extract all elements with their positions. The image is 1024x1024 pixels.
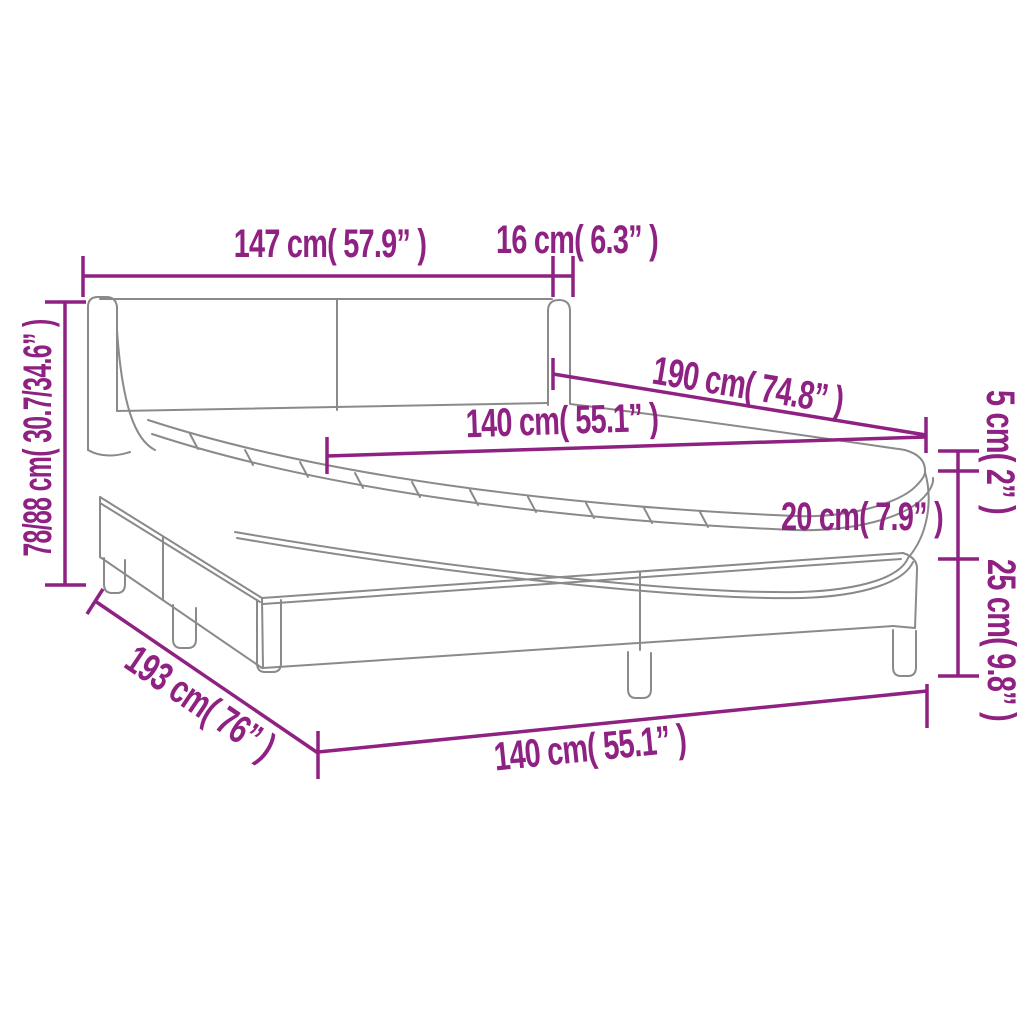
headboard-left-post-bottom	[88, 450, 130, 456]
bed-leg-1	[104, 558, 125, 593]
mattress-bottom-edge-2	[237, 538, 913, 598]
dimension-diagram: 147 cm( 57.9” ) 16 cm( 6.3” ) 78/88 cm( …	[0, 0, 1024, 1024]
dim-label-topper-height: 5 cm( 2” )	[980, 390, 1020, 514]
bed-leg-2	[173, 605, 196, 648]
dim-label-headboard-width: 147 cm( 57.9” )	[234, 224, 427, 264]
dim-label-total-height: 78/88 cm( 30.7/34.6” )	[18, 319, 58, 556]
dim-label-base-height: 25 cm( 9.8” )	[981, 559, 1021, 721]
base-corner-edge	[262, 598, 263, 668]
bed-leg-4	[628, 652, 651, 698]
base-front-face-bottom	[263, 626, 893, 668]
headboard-left-post-inner	[117, 330, 155, 450]
bed-leg-5	[893, 630, 916, 676]
dim-label-mattress-width: 140 cm( 55.1” )	[465, 398, 659, 445]
dim-tick	[87, 589, 103, 614]
dim-label-headboard-depth: 16 cm( 6.3” )	[496, 220, 658, 260]
base-bottom-right-edge	[893, 626, 915, 628]
dim-label-mattress-height: 20 cm( 7.9” )	[781, 497, 943, 537]
mattress-corner-arc	[905, 450, 925, 472]
headboard-left-post	[88, 297, 117, 450]
bed-leg-3	[257, 600, 281, 672]
